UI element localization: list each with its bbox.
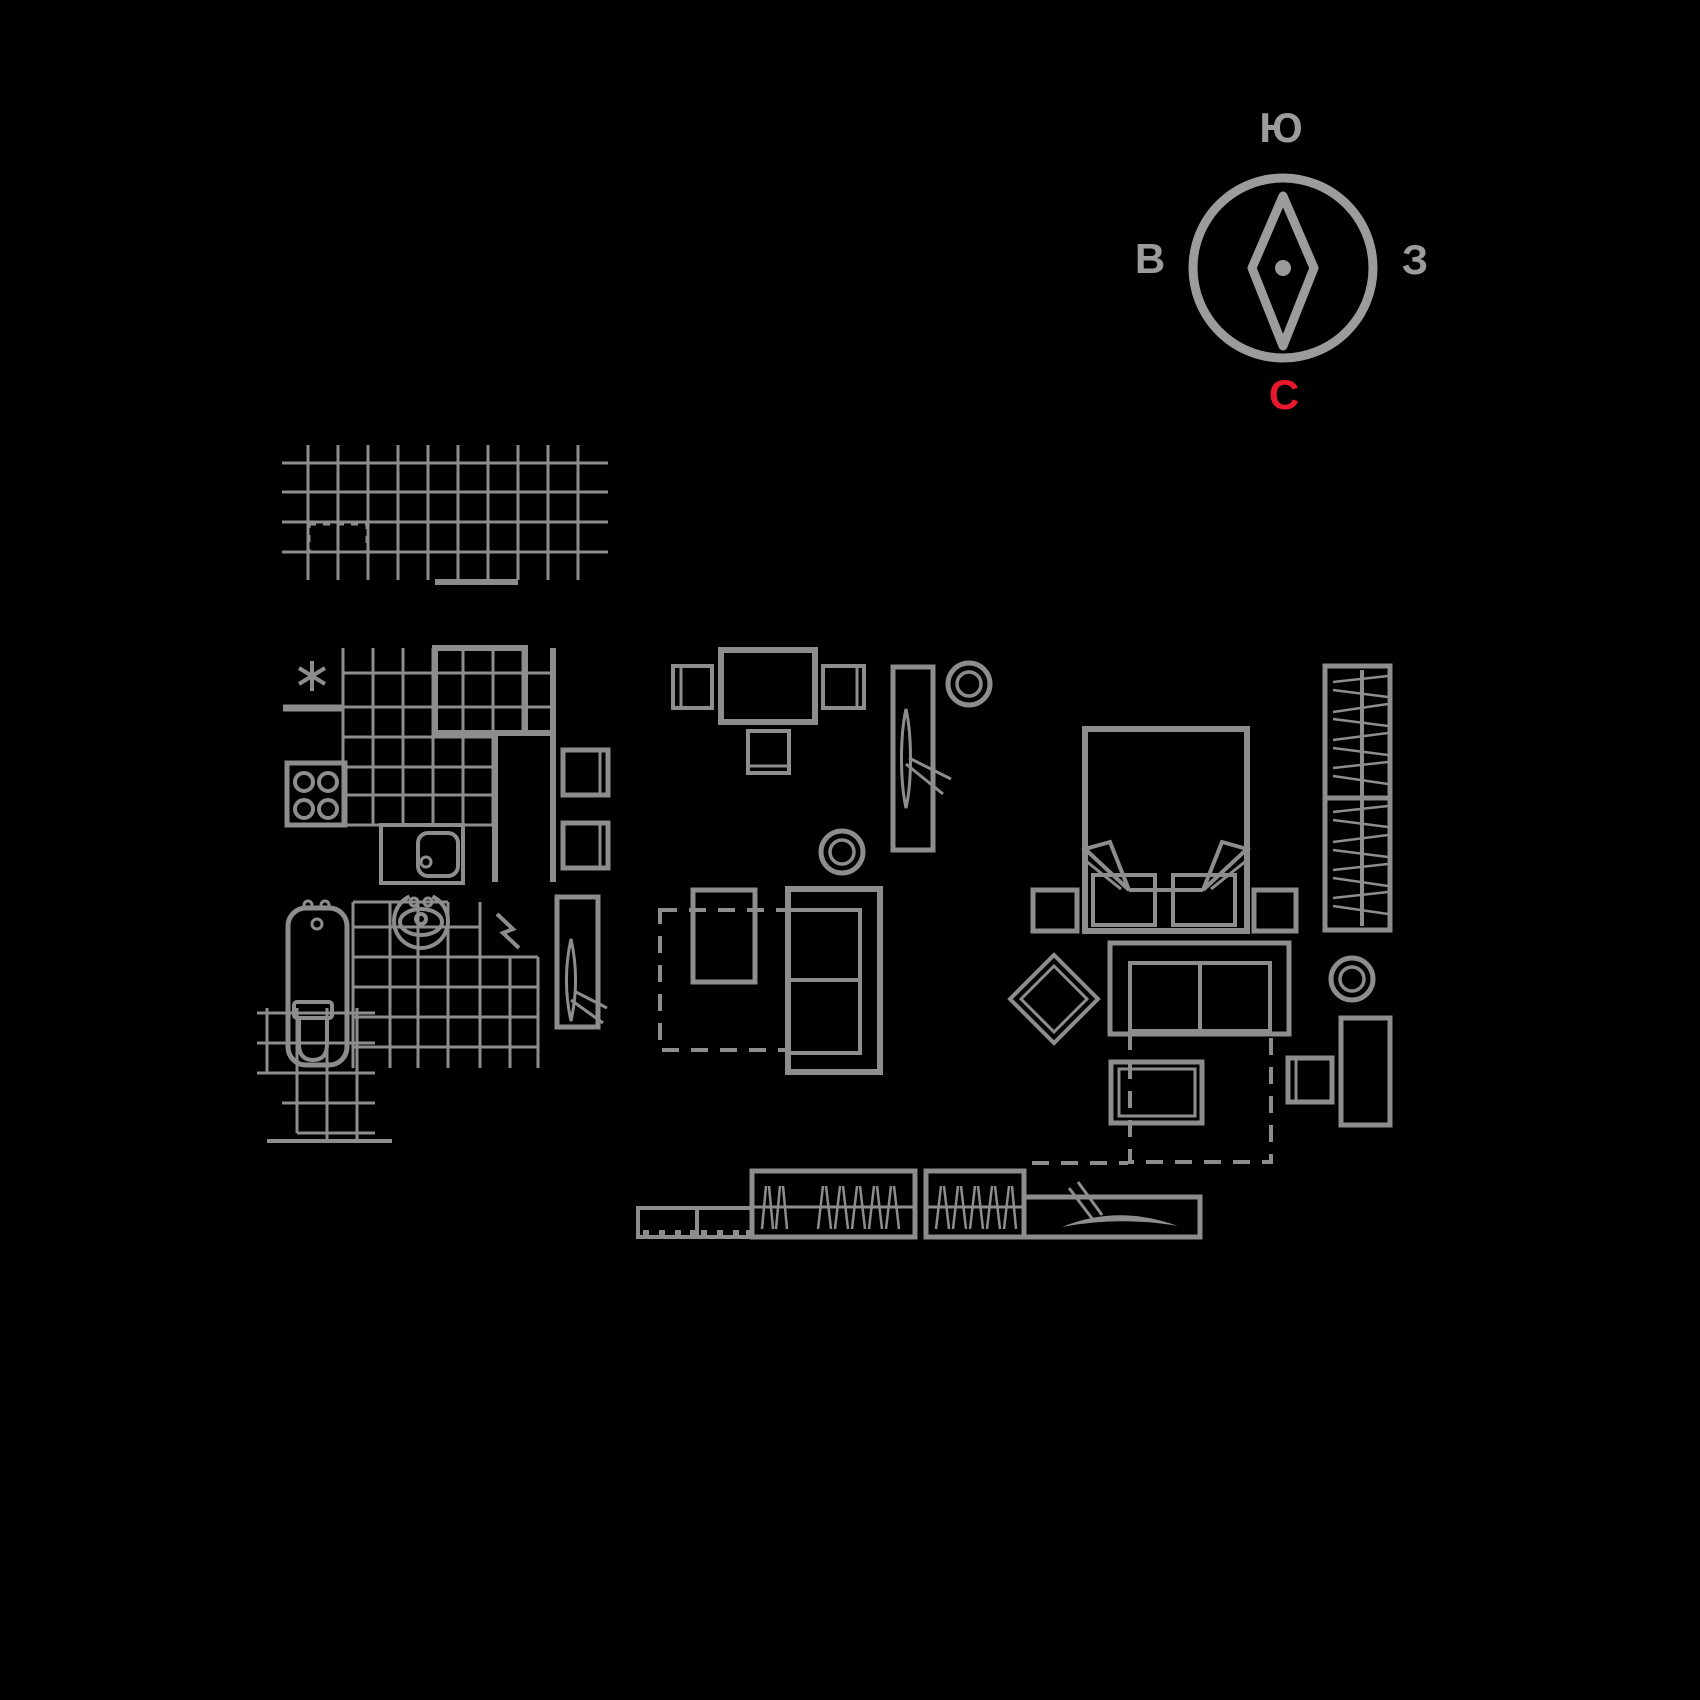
compass-label-south: Ю: [1259, 104, 1302, 151]
dresser: [1110, 943, 1289, 1034]
kitchen-window-shaft: [435, 648, 525, 733]
sliding-door-unit: [1024, 1182, 1200, 1237]
blanket-folds: [1085, 842, 1247, 890]
dining-table: [721, 650, 815, 722]
ceiling-lamp-icon: [948, 663, 990, 705]
kitchen: [283, 648, 608, 883]
toilet-tile-grid: [257, 1008, 375, 1140]
stove-four-burners: [287, 763, 345, 825]
electric-symbol-icon: [497, 914, 519, 948]
dining-set: [673, 650, 990, 873]
balcony-tile-grid: [282, 445, 608, 582]
wardrobe-with-hangers: [1325, 666, 1390, 930]
closet-hatched-right: [926, 1171, 1024, 1237]
dining-chair-left: [673, 666, 712, 708]
kitchen-appliance-cabinets: [563, 750, 608, 868]
room-door: [893, 667, 951, 850]
side-table: [693, 890, 755, 982]
lamp-ring-icon: [1331, 958, 1373, 1000]
wc-corner: [257, 1002, 392, 1141]
compass-label-west: З: [1402, 236, 1428, 283]
nightstand-left: [1033, 890, 1077, 931]
floor-lamp-icon: [821, 831, 863, 873]
bench: [1111, 1062, 1202, 1123]
tv-stand-with-feet: [638, 1208, 752, 1237]
kitchen-tile-grid: [343, 648, 553, 825]
dining-chair-right: [823, 666, 864, 708]
bathroom-door: [557, 897, 607, 1027]
kitchen-note-asterisk-icon: [299, 661, 325, 691]
ottoman-diamond: [1010, 955, 1098, 1043]
kitchen-sink-counter: [381, 825, 463, 883]
floor-plan-svg: Ю В З С: [0, 0, 1700, 1700]
closet-hatched-left: [752, 1171, 915, 1237]
compass-rose: [1193, 178, 1373, 358]
bedroom-zone: [1010, 666, 1390, 1163]
sofa: [788, 889, 880, 1072]
small-cabinet: [1288, 1058, 1332, 1102]
dining-chair-bottom: [748, 731, 789, 773]
plan-layer: [257, 445, 1390, 1237]
living-zone: [660, 889, 880, 1072]
compass-label-north: С: [1269, 371, 1299, 418]
compass-center-dot: [1275, 260, 1291, 276]
door-leaf-lens: [1062, 1215, 1178, 1227]
washbasin: [394, 897, 448, 948]
double-bed: [1085, 729, 1247, 931]
floor-plan-canvas: Ю В З С: [0, 0, 1700, 1700]
tall-cabinet: [1341, 1018, 1390, 1125]
compass-label-east: В: [1135, 235, 1165, 282]
nightstand-right: [1254, 890, 1296, 931]
storage-row: [638, 1171, 1200, 1237]
